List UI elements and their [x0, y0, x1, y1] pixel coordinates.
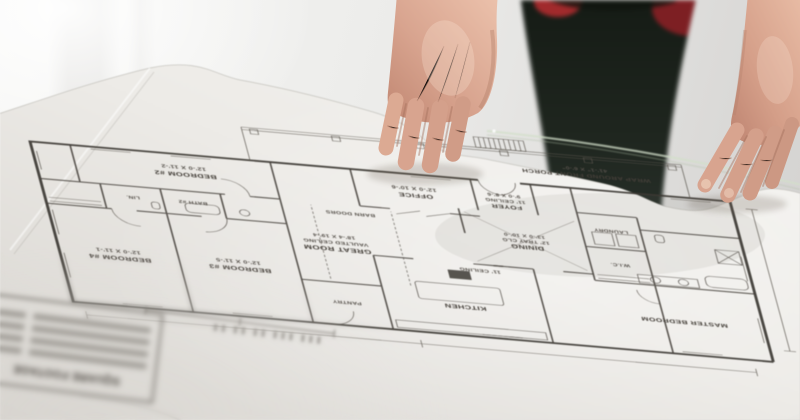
photo-scene: BEDROOM #2 12'-0 X 11'-2 BEDROOM #3 12'-… — [0, 0, 800, 420]
vignette — [0, 0, 800, 420]
